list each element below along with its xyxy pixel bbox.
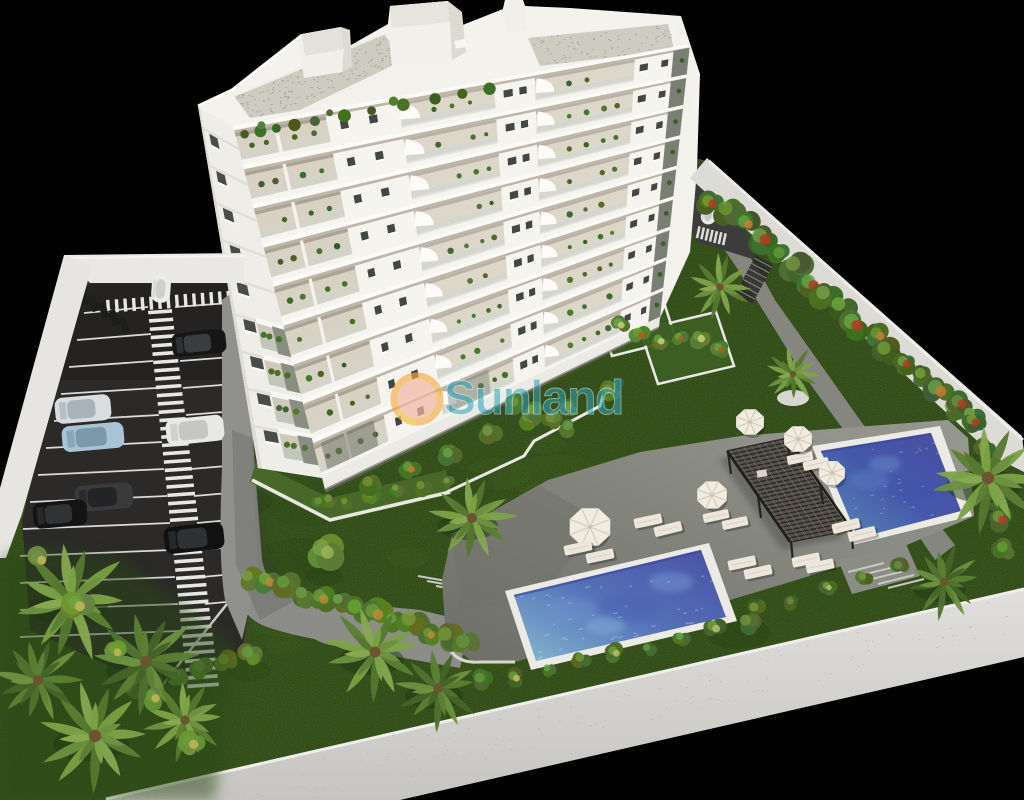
svg-text:Sunland: Sunland [444, 372, 623, 425]
svg-text:®: ® [616, 378, 624, 390]
